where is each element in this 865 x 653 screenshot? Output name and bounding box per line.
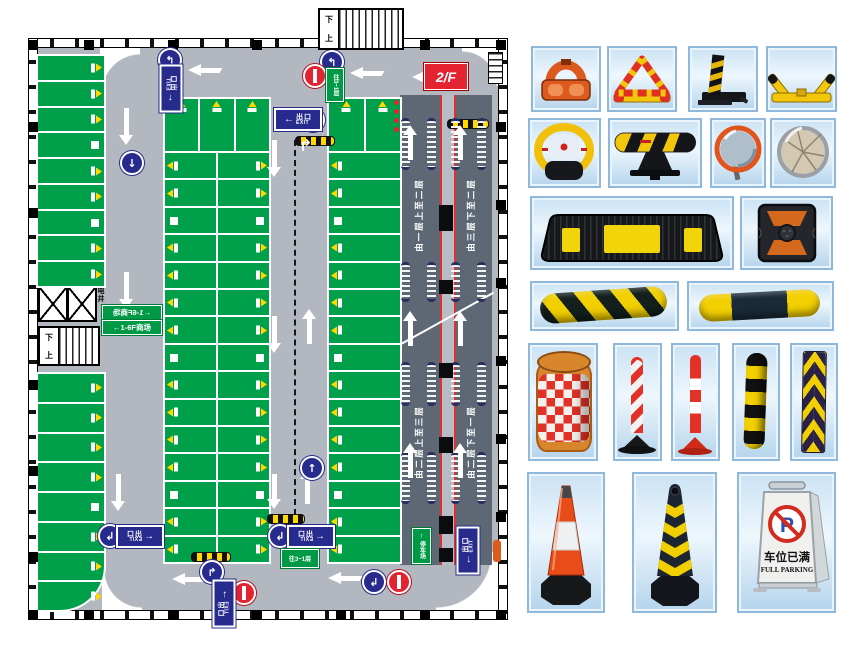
exit-label-en: EXIT [297, 538, 313, 543]
product-k-type-parking-lock[interactable] [766, 46, 837, 112]
exit-label-en: EXIT [165, 75, 170, 91]
wall-column [28, 466, 38, 476]
stall-number-marker [331, 161, 342, 170]
stall-arrow-icon [167, 189, 173, 197]
stall-number [91, 383, 95, 392]
stall-arrow-icon [261, 299, 267, 307]
ramp-arrow-up [408, 320, 413, 346]
parking-stall-row [165, 235, 269, 262]
ramp-arrow-up [408, 134, 413, 160]
duct-shaft [488, 52, 503, 84]
wall-column [28, 208, 38, 218]
stall-number [174, 271, 178, 280]
stall-number-marker [91, 244, 102, 253]
product-o-type-parking-lock[interactable] [531, 46, 601, 112]
ramp-divider-block [439, 363, 453, 378]
stall-number [256, 545, 260, 554]
stall-arrow-icon [261, 326, 267, 334]
crash-barrel-body-icon [536, 362, 592, 452]
road-arrow-turn-right: ↱ [299, 136, 312, 155]
stall-number-marker [167, 545, 178, 554]
parking-stall-row [38, 374, 104, 404]
parking-stall-row [38, 262, 104, 286]
parking-stall-row [329, 208, 400, 235]
stall-arrow-icon [331, 408, 337, 416]
stall-number-marker [91, 270, 102, 279]
stall-number [342, 108, 351, 112]
structural-column [334, 354, 342, 362]
mall-direction-sign: ←1-6F商场 [102, 320, 162, 335]
stall-number-marker [167, 271, 178, 280]
stall-arrow-icon [96, 592, 102, 600]
stall-number [338, 326, 342, 335]
product-warning-bollard-banded[interactable] [671, 343, 720, 461]
stall-number-marker [91, 383, 102, 392]
stall-number-marker [167, 408, 178, 417]
direction-sign: ↓ [120, 151, 144, 175]
stall-number-marker [256, 435, 267, 444]
exit-label-en: EXIT [225, 602, 230, 618]
exit-label-en: EXIT [126, 538, 142, 543]
ramp-arrow-up [458, 452, 463, 478]
stall-number-marker [167, 517, 178, 526]
structural-column [170, 354, 178, 362]
parking-block-left-top [36, 54, 106, 288]
parking-stall-row [329, 537, 400, 562]
stall-number-marker [91, 562, 102, 571]
stall-arrow-icon [261, 271, 267, 279]
stall-number [378, 108, 387, 112]
wall-column [252, 40, 262, 50]
wall-column [496, 122, 506, 132]
product-convex-mirror-orange[interactable] [710, 118, 766, 188]
ramp-divider-block [439, 516, 453, 534]
stall-number-marker [91, 413, 102, 422]
stall-arrow-icon [167, 271, 173, 279]
outer-wall-top [28, 38, 508, 48]
product-road-stud-reflector[interactable] [740, 196, 833, 270]
wall-column [420, 610, 430, 620]
reflector-dot [394, 127, 399, 132]
stall-number [91, 473, 95, 482]
stall-number [174, 545, 178, 554]
stall-number-marker [331, 271, 342, 280]
product-traffic-cone-striped[interactable] [632, 472, 717, 613]
stall-number [91, 532, 95, 541]
left-arrow-icon: ← [463, 555, 473, 565]
stall-number [256, 189, 260, 198]
structural-column [91, 141, 99, 149]
road-arrow-left [328, 572, 364, 584]
stall-number [338, 408, 342, 417]
parking-stall-row [329, 153, 400, 180]
no-entry-sign [232, 581, 256, 605]
stall-number [256, 243, 260, 252]
stall-arrow-icon [331, 162, 337, 170]
stall-arrow-icon [96, 193, 102, 201]
stall-number-marker [256, 271, 267, 280]
stall-number-marker [256, 161, 267, 170]
stall-arrow-icon [261, 545, 267, 553]
stall-number-marker [331, 243, 342, 252]
ramp-rumble-marking [427, 118, 436, 170]
product-remote-ring-parking-lock[interactable] [528, 118, 601, 188]
stall-number-marker [167, 435, 178, 444]
stall-arrow-icon [261, 189, 267, 197]
reflector-dot [394, 100, 399, 105]
wall-column [28, 40, 38, 50]
parking-stall-row [38, 56, 104, 82]
down-arrow-icon: ↓ [127, 157, 136, 170]
product-corner-guard-striped[interactable] [732, 343, 780, 461]
road-stud-reflector-icon [742, 198, 831, 268]
product-speed-hump-diagonal[interactable] [530, 281, 679, 331]
parking-stall-row [38, 211, 104, 237]
stall-number [174, 408, 178, 417]
full-parking-label-cn: 车位已满 [764, 550, 810, 564]
parking-stall [236, 99, 269, 151]
stall-arrow-icon [261, 244, 267, 252]
stall-number-marker [91, 443, 102, 452]
stall-arrow-icon [96, 270, 102, 278]
parking-stall-row [38, 582, 104, 610]
wall-column [496, 434, 506, 444]
product-speed-hump-segmented[interactable] [687, 281, 834, 331]
speed-hump-segmented-icon [698, 289, 820, 322]
stall-number-marker [167, 161, 178, 170]
ramp-rumble-marking [427, 452, 436, 504]
stall-arrow-icon [96, 244, 102, 252]
exit-sign: ← 出口EXIT [160, 65, 183, 113]
a-type-triangle-parking-lock-icon [609, 48, 675, 110]
ramp-label-down-to-1f: 由二层下至一层 [465, 382, 477, 502]
stall-number-marker [331, 435, 342, 444]
stall-arrow-icon [379, 101, 387, 107]
stall-arrow-icon [167, 299, 173, 307]
wall-column [168, 610, 178, 620]
stall-arrow-icon [167, 518, 173, 526]
parking-stall-row [38, 133, 104, 159]
stall-arrow-icon [96, 443, 102, 451]
stall-arrow-icon [331, 299, 337, 307]
no-entry-sign [387, 570, 411, 594]
bar-parking-lock-icon [610, 120, 700, 186]
product-bar-parking-lock[interactable] [608, 118, 702, 188]
stall-number-marker [331, 380, 342, 389]
stall-number-marker [167, 326, 178, 335]
left-arrow-icon: ← [166, 93, 176, 103]
road-arrow-up [307, 318, 312, 344]
warning-bollard-banded-icon [690, 355, 701, 433]
stall-number-marker [331, 298, 342, 307]
stall-arrow-icon [96, 473, 102, 481]
parking-stall-row [38, 108, 104, 134]
ramp-rumble-marking [477, 262, 486, 302]
traffic-cone-striped-icon [634, 474, 715, 611]
stall-arrow-icon [96, 90, 102, 98]
stall-number [174, 435, 178, 444]
parking-stall-row [165, 153, 269, 180]
parking-stall-row [38, 236, 104, 262]
stall-number-marker [256, 545, 267, 554]
stall-number [91, 413, 95, 422]
o-type-parking-lock-icon [533, 48, 599, 110]
parking-stall-row [165, 345, 269, 372]
stall-number [174, 161, 178, 170]
road-arrow-down [272, 316, 277, 344]
stall-number-marker [167, 298, 178, 307]
stall-number [256, 517, 260, 526]
parking-stall-row [38, 493, 104, 523]
product-bollard-parking-lock[interactable] [688, 46, 758, 112]
stall-number-marker [256, 326, 267, 335]
product-rubber-wheel-stop[interactable] [530, 196, 734, 270]
stall-number [91, 115, 95, 124]
stall-arrow-icon [167, 326, 173, 334]
stall-number-marker [91, 192, 102, 201]
stall-number [91, 89, 95, 98]
stall-arrow-icon [96, 414, 102, 422]
road-corner-curve [102, 570, 142, 610]
mall-sign-label: ←1-6F商场 [113, 307, 151, 318]
stairwell-left: 下上 [38, 326, 100, 366]
stall-number-marker [342, 101, 351, 112]
stall-number [338, 243, 342, 252]
stall-number [174, 517, 178, 526]
wall-column [496, 278, 506, 288]
stall-number [174, 463, 178, 472]
wall-column [28, 380, 38, 390]
corner-guard-striped-icon [743, 353, 767, 450]
parking-stall-row [38, 463, 104, 493]
stall-number-marker [331, 326, 342, 335]
parking-stall-row [38, 82, 104, 108]
stairwell-top: 下上 [318, 8, 404, 50]
parking-solutions-page: 由一层上至二层 由三层下至二层 由二层上至三层 由二层下至一层 下上 下上 电井 [0, 0, 865, 653]
stall-arrow-icon [167, 381, 173, 389]
parking-stall-row [38, 185, 104, 211]
wall-column [496, 610, 506, 620]
turn-left-arrow-icon: ↰ [327, 56, 336, 69]
stall-number-marker [378, 101, 387, 112]
stall-number [338, 517, 342, 526]
wall-column [496, 356, 506, 366]
structural-column [170, 217, 178, 225]
wall-column [28, 122, 38, 132]
left-arrow-icon: ← [315, 532, 325, 542]
product-crash-barrel[interactable] [528, 343, 598, 461]
exit-sign: ← 出口EXIT [457, 527, 480, 575]
bollard-parking-lock-icon [690, 48, 756, 110]
stall-arrow-icon [261, 381, 267, 389]
turn-left-down-arrow-icon: ↲ [369, 576, 378, 589]
stall-arrow-icon [167, 244, 173, 252]
exit-sign: ← 出口EXIT [213, 580, 236, 628]
road-arrow-down [272, 474, 277, 500]
parking-stall-row [165, 290, 269, 317]
exit-sign: ← 出口EXIT [274, 108, 322, 131]
stall-number [91, 270, 95, 279]
product-convex-mirror-round[interactable] [770, 118, 836, 188]
wall-column [496, 200, 506, 210]
parking-stall-row [329, 482, 400, 509]
stall-number-marker [256, 517, 267, 526]
stall-number [174, 243, 178, 252]
stall-arrow-icon [261, 408, 267, 416]
ramp-divider-block [439, 437, 453, 453]
parking-stall-row [329, 180, 400, 207]
parking-block-center-east [327, 97, 402, 564]
stall-number [91, 244, 95, 253]
convex-mirror-round-icon [772, 120, 834, 186]
stall-number-marker [91, 167, 102, 176]
stall-arrow-icon [167, 545, 173, 553]
full-parking-label-en: FULL PARKING [761, 566, 814, 574]
floor-info-sign: 往3~1层 [326, 68, 344, 102]
stall-number-marker [91, 115, 102, 124]
parking-stall-row [165, 482, 269, 509]
stall-number-marker [167, 243, 178, 252]
stall-arrow-icon [96, 384, 102, 392]
stall-number [174, 380, 178, 389]
stall-number [338, 298, 342, 307]
stall-number [91, 192, 95, 201]
turn-left-down-arrow-icon: ↲ [105, 530, 114, 543]
wall-column [336, 610, 346, 620]
parking-stall-row [165, 427, 269, 454]
parking-stall-row [329, 454, 400, 481]
ramp-rumble-marking [477, 452, 486, 504]
parking-stall-row [165, 400, 269, 427]
column-corner-guard [493, 540, 501, 562]
parking-stall-row [38, 404, 104, 434]
stall-arrow-icon [331, 189, 337, 197]
ramp-rumble-marking [427, 362, 436, 406]
stall-arrow-icon [167, 436, 173, 444]
stall-number [174, 189, 178, 198]
stall-arrow-icon [331, 381, 337, 389]
product-a-type-parking-lock[interactable] [607, 46, 677, 112]
k-type-parking-lock-icon [768, 48, 835, 110]
stall-number-marker [331, 189, 342, 198]
stall-arrow-icon [331, 271, 337, 279]
speed-bump [267, 514, 305, 524]
parking-stall-row [38, 159, 104, 185]
parking-stall-row [329, 427, 400, 454]
stall-number [256, 271, 260, 280]
stair-treads [338, 10, 402, 48]
reflector-dot [394, 118, 399, 123]
stall-number-marker [167, 189, 178, 198]
stall-number [256, 298, 260, 307]
left-arrow-icon: ← [284, 115, 294, 125]
stall-arrow-icon [167, 463, 173, 471]
stall-number [174, 298, 178, 307]
stall-number-marker [91, 592, 102, 601]
stall-number [91, 443, 95, 452]
speed-hump-diagonal-icon [539, 286, 668, 325]
left-arrow-icon: ← [219, 590, 229, 600]
stall-number [338, 189, 342, 198]
parking-stall-row [165, 317, 269, 344]
parking-stall-row [165, 263, 269, 290]
parking-stall-row [38, 553, 104, 583]
structural-column [256, 491, 264, 499]
product-warning-bollard-chevron[interactable] [613, 343, 662, 461]
parking-stall-row [329, 290, 400, 317]
product-corner-guard-chevron[interactable] [790, 343, 838, 461]
road-arrow-down [124, 108, 129, 136]
stall-number-marker [331, 408, 342, 417]
parking-stall-row [329, 400, 400, 427]
wall-column [252, 610, 262, 620]
floor-info-label: 往3~1层 [289, 554, 311, 563]
ramp-rumble-marking [401, 362, 410, 406]
stall-number [256, 408, 260, 417]
stall-number-marker [167, 380, 178, 389]
stall-number-marker [248, 101, 257, 112]
ramp-label-down-to-2f: 由三层下至二层 [465, 155, 477, 275]
parking-stall [200, 99, 235, 151]
stall-arrow-icon [213, 101, 221, 107]
stall-arrow-icon [261, 463, 267, 471]
parking-sign-label: 停车场 [419, 541, 425, 559]
exit-label-en: EXIT [296, 121, 312, 126]
ramp-rumble-marking [477, 118, 486, 170]
stall-number-marker [256, 463, 267, 472]
bollard-foot [618, 446, 656, 454]
stall-arrow-icon [96, 115, 102, 123]
exit-sign: ← 出口EXIT [116, 525, 164, 548]
product-traffic-cone-red[interactable] [527, 472, 605, 613]
wall-column [84, 40, 94, 50]
parking-stall [366, 99, 401, 151]
stall-number [212, 108, 221, 112]
parking-stall-row [165, 208, 269, 235]
up-arrow-icon: ↑ [420, 533, 424, 540]
stairs-down-label: 下 [45, 332, 53, 343]
road-arrow-up [305, 478, 310, 504]
parking-direction-sign: ↑ 停车场 [412, 528, 431, 564]
ramp-label-up-to-3f: 由二层上至三层 [413, 382, 425, 502]
exit-label-en: EXIT [469, 537, 474, 553]
warning-bollard-chevron-icon [631, 357, 643, 433]
stair-treads [58, 328, 98, 364]
structural-column [91, 219, 99, 227]
stall-number [256, 326, 260, 335]
parking-stall-row [38, 434, 104, 464]
traffic-cone-red-icon [529, 474, 603, 611]
structural-column [334, 217, 342, 225]
parking-floorplan: 由一层上至二层 由三层下至二层 由二层上至三层 由二层下至一层 下上 下上 电井 [0, 0, 515, 653]
stall-number [338, 463, 342, 472]
stall-number-marker [91, 63, 102, 72]
ramp-rumble-marking [427, 262, 436, 302]
parking-block-left-bottom [36, 372, 106, 612]
stall-arrow-icon [167, 162, 173, 170]
stall-number [91, 167, 95, 176]
stall-arrow-icon [331, 436, 337, 444]
stall-arrow-icon [331, 244, 337, 252]
product-full-parking-stand-sign[interactable]: P 车位已满 FULL PARKING [737, 472, 836, 613]
stall-arrow-icon [96, 167, 102, 175]
wall-column [496, 512, 506, 522]
parking-stall-row [329, 509, 400, 536]
mall-sign-label: ←1-6F商场 [113, 322, 151, 333]
stall-number-marker [256, 243, 267, 252]
parking-stall-row [165, 509, 269, 536]
rubber-wheel-stop-icon [532, 198, 732, 268]
